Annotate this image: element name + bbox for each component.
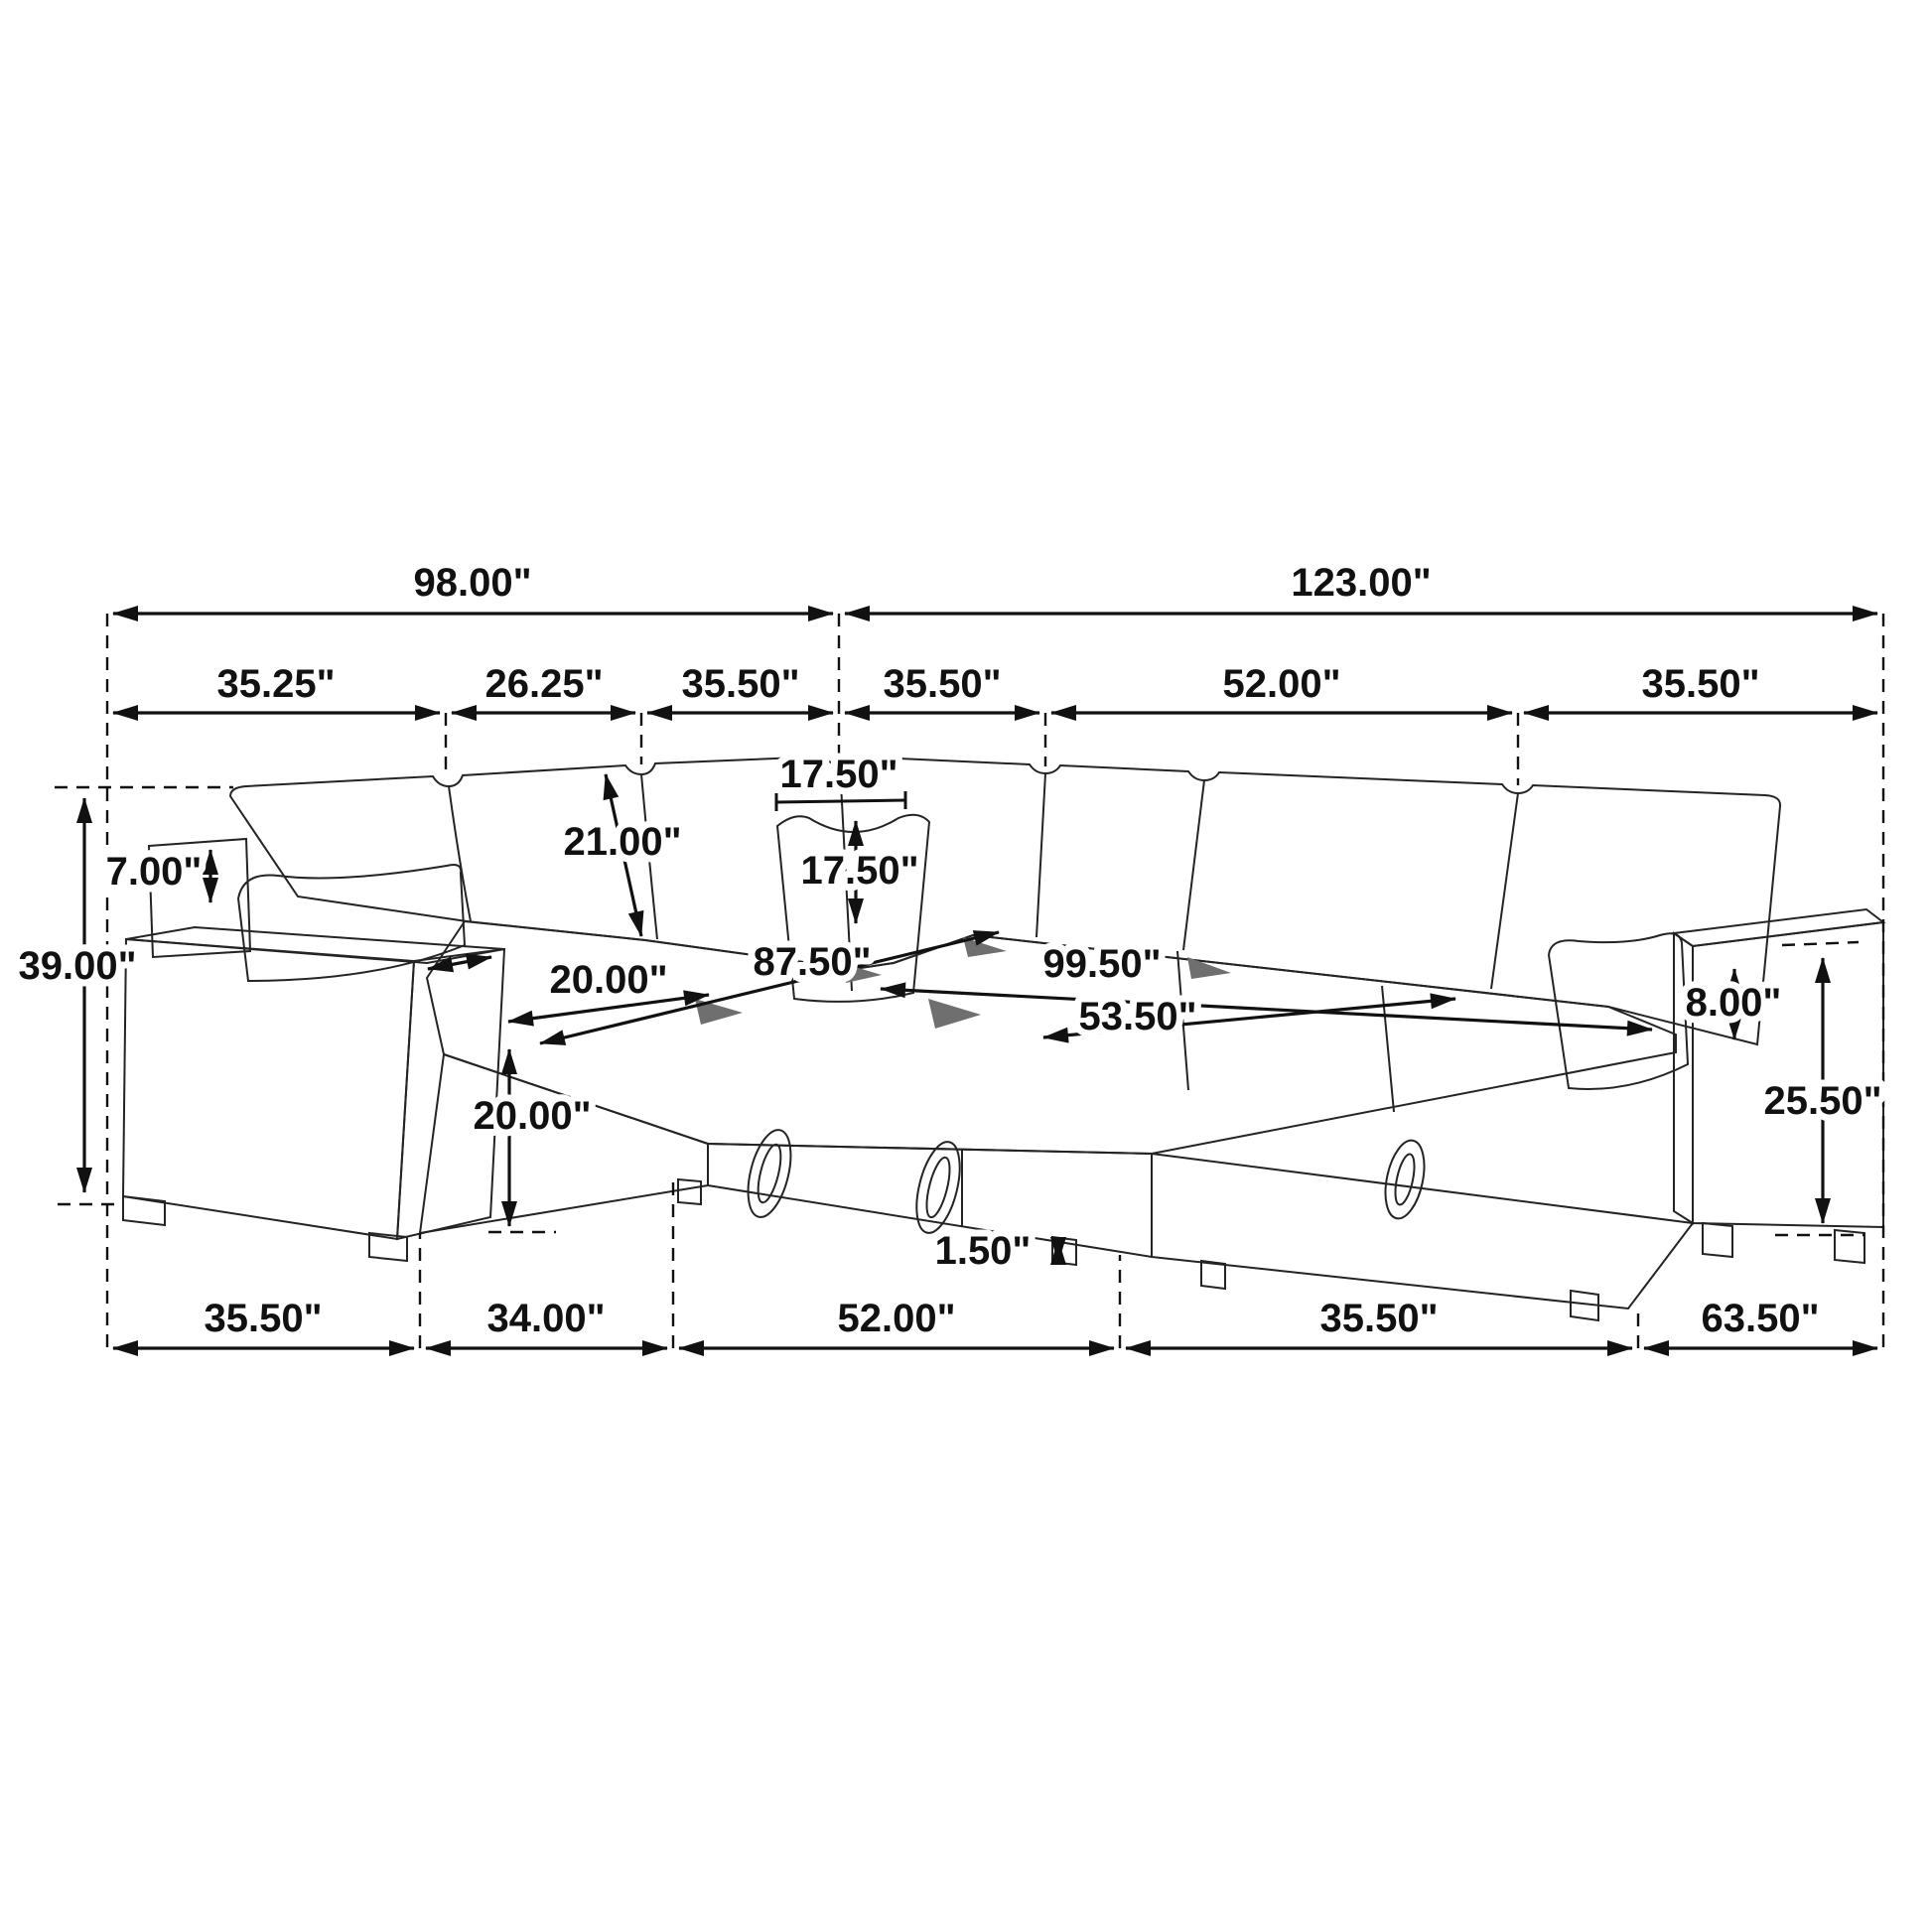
right-console-foot-left (1703, 1223, 1732, 1257)
label-overall-height: 39.00" (18, 944, 136, 988)
label-bottom-seg-5: 63.50" (1701, 1297, 1819, 1340)
trundle-storage-front (708, 1144, 1152, 1257)
label-backrest-height: 21.00" (563, 820, 681, 864)
label-storage-base-height: 20.00" (473, 1094, 591, 1138)
label-back-pillow-rise: 7.00" (106, 850, 203, 894)
right-console-top (1674, 909, 1883, 946)
label-bottom-seg-1: 35.50" (204, 1297, 322, 1340)
chaise-storage-front (420, 1054, 708, 1233)
sofa-legs (678, 1179, 1598, 1320)
label-bottom-seg-2: 34.00" (486, 1297, 605, 1340)
sectional-sofa-dimension-drawing: 98.00" 123.00" 35.25" 26.25" 35.50" 35.5… (0, 0, 1932, 1932)
label-seat-walkway-depth: 20.00" (549, 958, 667, 1002)
label-bed-width: 53.50" (1078, 995, 1196, 1038)
label-overall-right: 123.00" (1291, 561, 1431, 605)
label-top-seg-5: 52.00" (1222, 662, 1340, 706)
label-pillow-width: 17.50" (779, 753, 897, 796)
label-top-seg-4: 35.50" (883, 662, 1001, 706)
label-arm-height: 25.50" (1763, 1079, 1881, 1123)
right-storage-front (1152, 1154, 1693, 1309)
backrest-cushion-dividers (449, 764, 1518, 991)
label-chaise-total-depth: 87.50" (753, 940, 871, 984)
left-console-foot-left (123, 1196, 165, 1225)
left-console-tabletop (126, 927, 504, 963)
left-throw-pillow (238, 865, 465, 981)
label-bed-length: 99.50" (1042, 942, 1161, 986)
label-bottom-seg-3: 52.00" (837, 1297, 955, 1340)
right-console-front (1693, 922, 1883, 1227)
dim-99-line (881, 989, 1652, 1030)
label-top-seg-3: 35.50" (681, 662, 799, 706)
label-top-seg-1: 35.25" (216, 662, 335, 706)
dim-pillow-width-line (776, 800, 905, 802)
label-pillow-height: 17.50" (800, 849, 918, 893)
dimension-diagram: 98.00" 123.00" 35.25" 26.25" 35.50" 35.5… (0, 0, 1932, 1932)
fabric-loop-handles (741, 1126, 1431, 1237)
label-top-seg-6: 35.50" (1641, 662, 1759, 706)
left-arm-console (123, 927, 504, 1261)
label-bottom-seg-4: 35.50" (1319, 1297, 1438, 1340)
label-leg-clearance: 1.50" (935, 1229, 1032, 1273)
label-top-seg-2: 26.25" (484, 662, 603, 706)
label-overall-left: 98.00" (413, 561, 531, 605)
label-armrest-above-seat: 8.00" (1686, 981, 1782, 1025)
left-console-front (123, 939, 414, 1239)
